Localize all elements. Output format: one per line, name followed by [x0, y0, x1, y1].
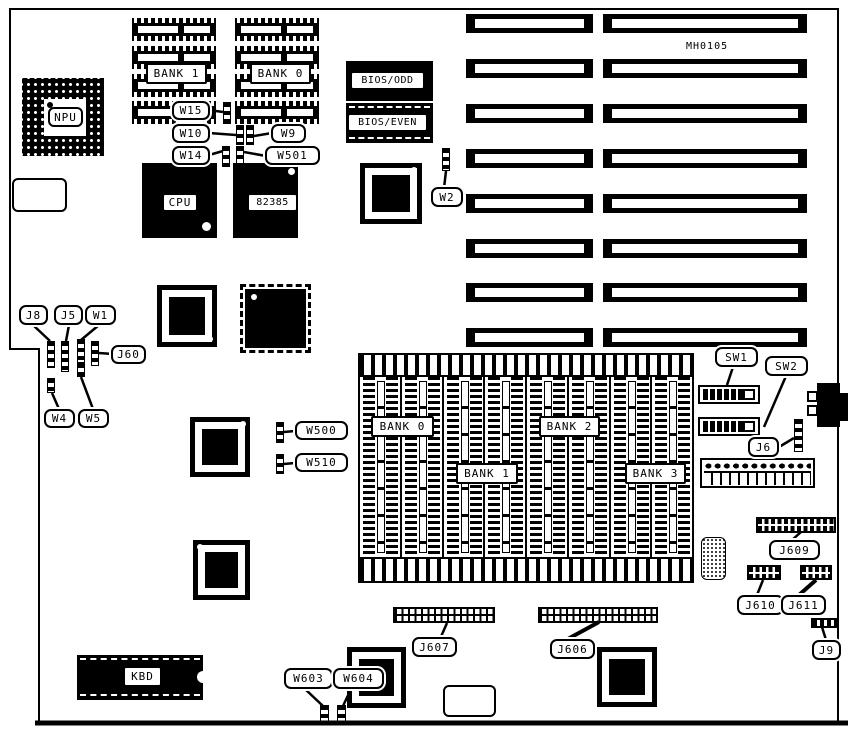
isa-slot-segment: [466, 328, 593, 347]
plcc-chip: [597, 647, 657, 707]
kbd-chip-notch: [197, 671, 209, 683]
header-j607: [393, 607, 495, 623]
bios-even-label: BIOS/EVEN: [348, 114, 427, 131]
header-j611: [800, 565, 832, 580]
simm-bank3-label: BANK 3: [625, 463, 686, 484]
isa-slot-segment: [466, 283, 593, 302]
connector-label-j6: J6: [748, 437, 779, 457]
isa-slot-segment: [466, 104, 593, 123]
dram-dip-row: [235, 101, 319, 124]
cpu-pin1-dot: [202, 222, 211, 231]
isa-slot-segment: [466, 239, 593, 258]
simm-bank2-label: BANK 2: [539, 416, 600, 437]
dram-dip-row: [235, 18, 319, 41]
isa-slot-segment: [466, 149, 593, 168]
connector-label-j9: J9: [812, 640, 841, 660]
jumper-w1: [77, 339, 85, 363]
jumper-w10: [236, 125, 244, 145]
dram-dip-row: [132, 18, 216, 41]
jumper-w4: [47, 378, 55, 393]
plcc-pin1-dot: [207, 336, 213, 342]
connector-pad: [807, 405, 818, 416]
jumper-w604: [337, 705, 346, 722]
plcc-pin1-dot: [240, 421, 246, 427]
power-connector: [700, 458, 815, 488]
connector-label-j609: J609: [769, 540, 820, 560]
connector-label-j610: J610: [737, 595, 784, 615]
cache-pin1-dot: [288, 168, 295, 175]
keyboard-din-connector: [817, 383, 840, 427]
connector-pad: [807, 391, 818, 402]
motherboard-diagram: MH0105 NPU BANK 1 BANK 0 W15 W10 W9 W14 …: [0, 0, 852, 731]
jumper-w9: [246, 125, 254, 145]
isa-slot-segment: [603, 328, 807, 347]
board-model-number: MH0105: [686, 41, 728, 52]
jumper-label-w15: W15: [172, 101, 210, 120]
jumper-w15: [223, 102, 231, 124]
jumper-label-w603: W603: [284, 668, 333, 689]
header-j606: [538, 607, 658, 623]
memory-pin-band: [360, 557, 692, 581]
plcc-pin1-dot: [197, 544, 203, 550]
jumper-w14: [222, 146, 230, 167]
crystal-oscillator: [12, 178, 67, 212]
switch-label-sw1: SW1: [715, 347, 758, 367]
connector-label-j606: J606: [550, 639, 595, 659]
jumper-label-w1: W1: [85, 305, 116, 325]
jumper-label-w510: W510: [295, 453, 348, 472]
isa-slot-segment: [603, 194, 807, 213]
connector-label-j607: J607: [412, 637, 457, 657]
speaker-component: [701, 537, 726, 580]
crystal-oscillator: [443, 685, 496, 717]
jumper-label-w604: W604: [333, 668, 384, 689]
jumper-label-w500: W500: [295, 421, 348, 440]
header-j8: [47, 341, 55, 368]
jumper-label-w9: W9: [271, 124, 306, 143]
simm-bank0-label: BANK 0: [371, 416, 434, 437]
dip-switch-sw2: [698, 417, 760, 436]
jumper-w500: [276, 422, 284, 443]
isa-slot-segment: [603, 104, 807, 123]
connector-label-j60: J60: [111, 345, 146, 364]
jumper-w510: [276, 454, 284, 474]
header-j5: [61, 341, 69, 372]
switch-label-sw2: SW2: [765, 356, 808, 376]
jumper-label-w501: W501: [265, 146, 320, 165]
kbd-label: KBD: [124, 667, 161, 686]
simm-bank1-label: BANK 1: [456, 463, 518, 484]
header-j610: [747, 565, 781, 580]
jumper-w2: [442, 148, 450, 171]
jumper-label-w2: W2: [431, 187, 463, 207]
jumper-w603: [320, 705, 329, 722]
simm-socket: [569, 377, 611, 557]
isa-slot-segment: [466, 14, 593, 33]
header-j60: [91, 341, 99, 366]
header-j609: [756, 517, 836, 533]
jumper-label-w14: W14: [172, 146, 210, 165]
plcc-pin1-dot: [411, 167, 417, 173]
dip-switch-sw1: [698, 385, 760, 404]
connector-label-j5: J5: [54, 305, 83, 325]
cache-82385-label: 82385: [248, 194, 297, 211]
isa-slot-segment: [603, 283, 807, 302]
isa-slot-segment: [603, 59, 807, 78]
simm-socket: [402, 377, 444, 557]
cpu-label: CPU: [163, 194, 197, 211]
power-connector-pins: [704, 471, 811, 485]
simm-socket: [527, 377, 569, 557]
simm-socket: [360, 377, 402, 557]
jumper-w5: [77, 363, 85, 377]
isa-slot-segment: [603, 14, 807, 33]
dip-bank0-label: BANK 0: [250, 63, 311, 84]
npu-label: NPU: [48, 107, 83, 127]
header-j6: [794, 419, 803, 452]
connector-label-j8: J8: [19, 305, 48, 325]
qfp-pin1-dot: [251, 294, 257, 300]
isa-slot-segment: [466, 194, 593, 213]
jumper-label-w4: W4: [44, 409, 75, 428]
isa-slot-segment: [603, 149, 807, 168]
keyboard-din-connector: [840, 393, 848, 421]
connector-label-j611: J611: [781, 595, 826, 615]
jumper-label-w5: W5: [78, 409, 109, 428]
dip-bank1-label: BANK 1: [146, 63, 207, 84]
memory-pin-band: [360, 355, 692, 377]
isa-slot-segment: [603, 239, 807, 258]
jumper-label-w10: W10: [172, 124, 210, 143]
bios-odd-label: BIOS/ODD: [351, 72, 424, 89]
header-j9: [811, 618, 839, 628]
isa-slot-segment: [466, 59, 593, 78]
